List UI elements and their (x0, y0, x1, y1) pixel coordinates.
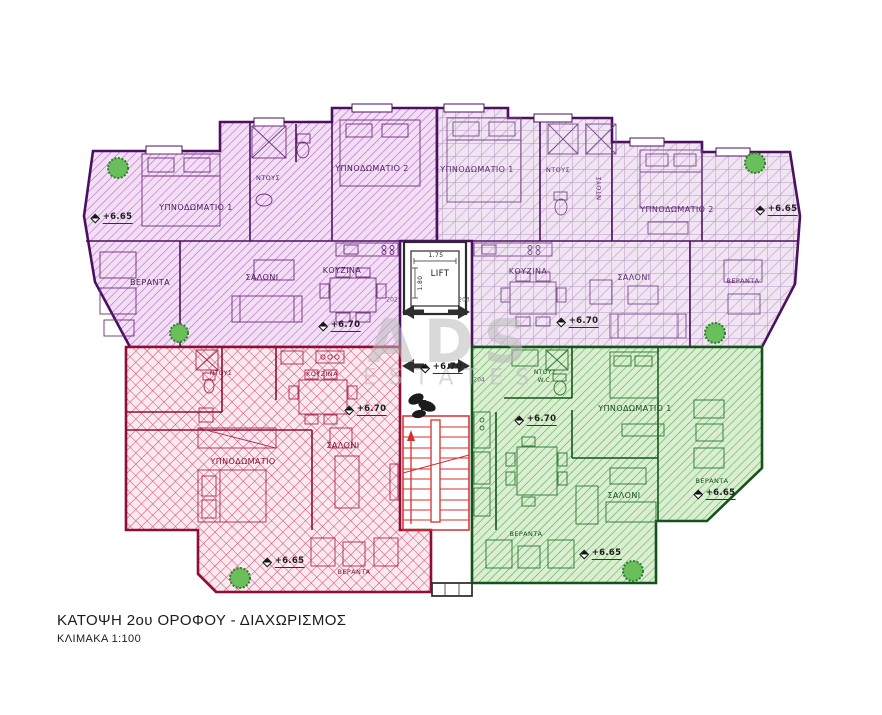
room-label-bl-kitchen: ΚΟΥΖΙΝΑ (306, 371, 338, 378)
room-label-bl-shower: ΝΤΟΥΣ (210, 371, 232, 377)
level-diamond-icon (693, 489, 703, 499)
room-label-bl-living: ΣΑΛΟΝΙ (326, 442, 359, 450)
level-marker-bl-veranda: +6.65 (264, 556, 305, 568)
level-marker-tr-veranda: +6.65 (757, 204, 798, 216)
staircase (403, 416, 469, 530)
room-label-tr-veranda: ΒΕΡΑΝΤΑ (726, 278, 759, 285)
room-label-br-veranda-bottom: ΒΕΡΑΝΤΑ (509, 531, 542, 538)
door-number-202: 202 (386, 297, 397, 304)
room-label-br-bedroom1: ΥΠΝΟΔΩΜΑΤΙΟ 1 (598, 405, 672, 413)
drawing-scale: ΚΛΙΜΑΚΑ 1:100 (57, 633, 346, 645)
level-diamond-icon (420, 363, 430, 373)
level-marker-tr-interior: +6.70 (558, 316, 599, 328)
room-label-tr-bedroom1: ΥΠΝΟΔΩΜΑΤΙΟ 1 (440, 166, 514, 174)
room-label-tl-shower: ΝΤΟΥΣ (256, 175, 280, 182)
room-label-tl-bedroom1: ΥΠΝΟΔΩΜΑΤΙΟ 1 (159, 204, 233, 212)
level-marker-hall: +6.70 (422, 362, 463, 374)
door-number-203: 203 (458, 297, 469, 304)
room-label-tr-bedroom2: ΥΠΝΟΔΩΜΑΤΙΟ 2 (640, 206, 714, 214)
level-marker-br-veranda-bottom: +6.65 (581, 548, 622, 560)
level-diamond-icon (579, 549, 589, 559)
room-label-tl-bedroom2: ΥΠΝΟΔΩΜΑΤΙΟ 2 (335, 165, 409, 173)
lift-label: LIFT (431, 270, 450, 279)
entrance-porch (432, 583, 472, 596)
level-diamond-icon (90, 213, 100, 223)
lift-width-dim: 1.75 (429, 253, 444, 259)
drawing-title: ΚΑΤΟΨΗ 2ου ΟΡΟΦΟΥ - ΔΙΑΧΩΡΙΣΜΟΣ (57, 612, 346, 629)
floorplan-canvas (0, 0, 882, 715)
level-diamond-icon (755, 205, 765, 215)
room-label-tr-living: ΣΑΛΟΝΙ (617, 274, 650, 282)
room-label-tr-shower1: ΝΤΟΥΣ (546, 167, 570, 174)
room-label-tl-living: ΣΑΛΟΝΙ (245, 274, 278, 282)
apartment-top-right-zone (437, 108, 800, 347)
level-marker-tl-veranda: +6.65 (92, 212, 133, 224)
room-label-bl-veranda: ΒΕΡΑΝΤΑ (337, 569, 370, 576)
plant-icon (407, 391, 438, 419)
room-label-tl-veranda: ΒΕΡΑΝΤΑ (130, 279, 170, 287)
level-diamond-icon (556, 317, 566, 327)
room-label-br-veranda-right: ΒΕΡΑΝΤΑ (695, 478, 728, 485)
level-marker-bl-interior: +6.70 (346, 404, 387, 416)
level-marker-br-veranda-right: +6.65 (695, 488, 736, 500)
room-label-bl-bedroom: ΥΠΝΟΔΩΜΑΤΙΟ (210, 458, 275, 466)
apartment-top-left-zone (84, 108, 437, 347)
room-label-tl-kitchen: ΚΟΥΖΙΝΑ (323, 267, 362, 275)
level-diamond-icon (514, 415, 524, 425)
level-diamond-icon (318, 321, 328, 331)
room-label-br-living: ΣΑΛΟΝΙ (607, 492, 640, 500)
level-marker-tl-interior: +6.70 (320, 320, 361, 332)
level-diamond-icon (344, 405, 354, 415)
room-label-tr-kitchen: ΚΟΥΖΙΝΑ (509, 268, 548, 276)
level-marker-br-interior: +6.70 (516, 414, 557, 426)
door-number-204: 204 (473, 377, 484, 384)
title-block: ΚΑΤΟΨΗ 2ου ΟΡΟΦΟΥ - ΔΙΑΧΩΡΙΣΜΟΣ ΚΛΙΜΑΚΑ … (57, 612, 346, 645)
room-label-tr-shower2: ΝΤΟΥΣ (596, 176, 603, 200)
lift-depth-dim: 1.80 (418, 276, 424, 291)
room-label-br-shower: ΝΤΟΥΣ (534, 370, 556, 376)
room-label-br-wc: W.C. (538, 378, 553, 384)
floorplan-page: ADS ESTATES ΥΠΝΟΔΩΜΑΤΙΟ 1 ΝΤΟΥΣ ΥΠΝΟΔΩΜΑ… (0, 0, 882, 715)
level-diamond-icon (262, 557, 272, 567)
